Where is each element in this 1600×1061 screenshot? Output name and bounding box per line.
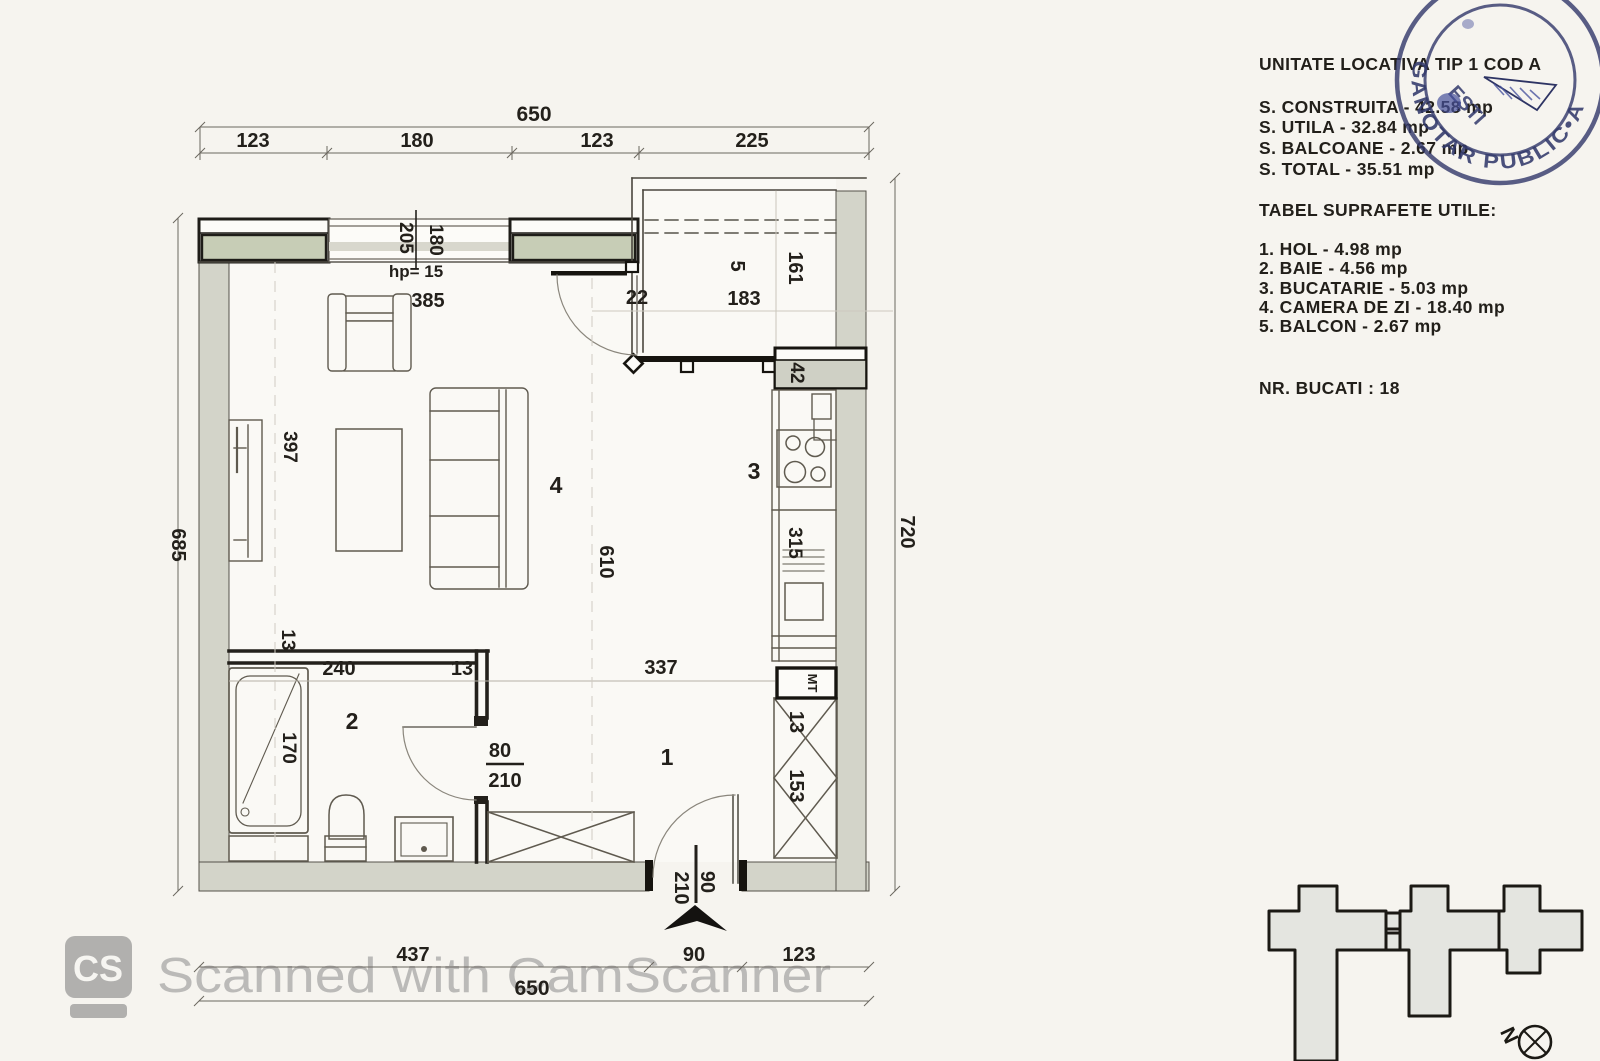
svg-text:650: 650: [514, 977, 549, 1000]
svg-text:4: 4: [550, 472, 563, 498]
svg-text:315: 315: [784, 527, 805, 559]
svg-text:NR. BUCATI : 18: NR. BUCATI : 18: [1259, 378, 1400, 398]
svg-text:13: 13: [451, 658, 473, 680]
svg-text:1. HOL - 4.98 mp: 1. HOL - 4.98 mp: [1259, 239, 1402, 259]
svg-text:397: 397: [279, 431, 300, 463]
svg-text:CS: CS: [73, 948, 123, 989]
svg-text:22: 22: [626, 287, 648, 309]
svg-text:13: 13: [277, 629, 298, 650]
svg-text:1: 1: [661, 744, 674, 770]
svg-text:S. TOTAL - 35.51 mp: S. TOTAL - 35.51 mp: [1259, 159, 1435, 179]
svg-text:650: 650: [516, 103, 551, 126]
svg-text:123: 123: [236, 130, 269, 152]
svg-text:437: 437: [396, 944, 429, 966]
svg-text:180: 180: [425, 224, 446, 256]
svg-text:337: 337: [644, 657, 677, 679]
svg-text:161: 161: [784, 251, 806, 284]
svg-text:5: 5: [726, 260, 748, 271]
svg-text:13: 13: [785, 711, 807, 733]
svg-text:4. CAMERA DE ZI - 18.40 mp: 4. CAMERA DE ZI - 18.40 mp: [1259, 297, 1505, 317]
svg-text:183: 183: [727, 288, 760, 310]
svg-text:MT: MT: [805, 674, 820, 693]
svg-text:205: 205: [395, 222, 416, 254]
svg-text:2: 2: [346, 708, 359, 734]
svg-text:210: 210: [670, 871, 692, 904]
svg-text:123: 123: [580, 130, 613, 152]
svg-text:720: 720: [896, 515, 918, 548]
svg-text:610: 610: [595, 545, 617, 578]
svg-text:3. BUCATARIE - 5.03 mp: 3. BUCATARIE - 5.03 mp: [1259, 278, 1468, 298]
svg-text:153: 153: [785, 769, 807, 802]
svg-text:685: 685: [167, 528, 189, 561]
svg-text:Scanned with CamScanner: Scanned with CamScanner: [157, 949, 831, 1003]
svg-text:42: 42: [786, 362, 807, 383]
svg-text:90: 90: [683, 944, 705, 966]
svg-text:225: 225: [735, 130, 768, 152]
svg-text:TABEL SUPRAFETE UTILE:: TABEL SUPRAFETE UTILE:: [1259, 200, 1497, 220]
svg-text:90: 90: [696, 871, 718, 893]
svg-text:80: 80: [489, 740, 511, 762]
svg-text:385: 385: [411, 290, 444, 312]
svg-text:170: 170: [278, 732, 299, 764]
svg-text:hp= 15: hp= 15: [389, 262, 443, 281]
svg-text:210: 210: [488, 770, 521, 792]
svg-text:5. BALCON - 2.67 mp: 5. BALCON - 2.67 mp: [1259, 316, 1442, 336]
svg-text:123: 123: [782, 944, 815, 966]
svg-text:3: 3: [748, 458, 761, 484]
svg-text:2. BAIE - 4.56 mp: 2. BAIE - 4.56 mp: [1259, 258, 1408, 278]
svg-text:180: 180: [400, 130, 433, 152]
svg-text:240: 240: [322, 658, 355, 680]
